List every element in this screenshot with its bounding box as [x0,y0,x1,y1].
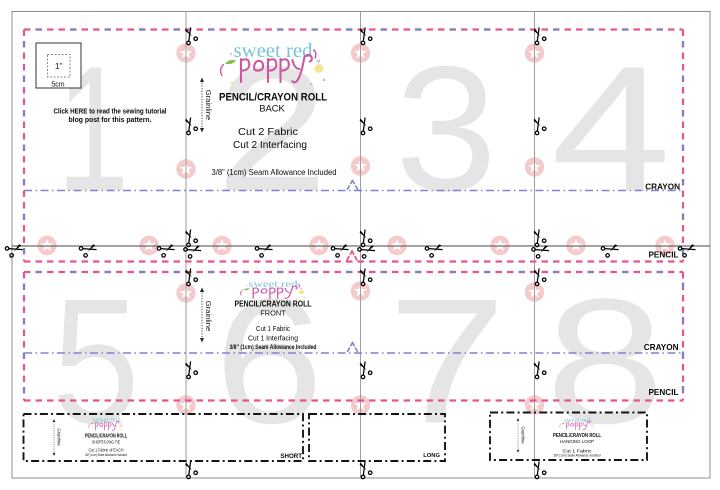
svg-text:3/8” (1cm) Seam Allowance Incl: 3/8” (1cm) Seam Allowance Included [85,453,127,457]
svg-text:Grainline: Grainline [521,426,526,444]
svg-text:3/8” (1cm) Seam Allowance Incl: 3/8” (1cm) Seam Allowance Included [230,344,317,351]
svg-text:PENCIL: PENCIL [648,388,678,397]
svg-text:1”: 1” [55,62,62,71]
svg-text:8: 8 [546,261,665,460]
svg-text:Click HERE to read the sewing: Click HERE to read the sewing tutorial [54,109,167,116]
svg-text:3: 3 [395,29,497,228]
svg-text:LONG: LONG [423,453,440,459]
svg-text:3/8” (1cm) Seam Allowance Incl: 3/8” (1cm) Seam Allowance Included [554,454,601,458]
svg-text:PENCIL: PENCIL [648,251,678,260]
svg-text:SHORT: SHORT [280,453,302,460]
svg-text:7: 7 [388,261,507,460]
svg-text:6: 6 [215,262,324,461]
svg-text:HANGING LOOP: HANGING LOOP [560,439,594,444]
svg-text:Cut 1 Fabric: Cut 1 Fabric [256,324,290,333]
svg-text:5cm: 5cm [51,82,64,89]
svg-text:Cut 2 Fabric: Cut 2 Fabric [238,127,298,138]
svg-text:Grainline: Grainline [204,301,213,331]
svg-text:PENCIL/CRAYON ROLL: PENCIL/CRAYON ROLL [219,92,327,104]
svg-text:Grainline: Grainline [57,428,62,446]
svg-text:CRAYON: CRAYON [645,183,680,192]
svg-text:5: 5 [52,261,139,461]
svg-text:Cut 2 Interfacing: Cut 2 Interfacing [233,140,307,151]
svg-text:Grainline: Grainline [204,90,213,120]
svg-text:blog post for this pattern.: blog post for this pattern. [69,117,152,124]
svg-text:CRAYON: CRAYON [644,343,679,352]
svg-text:SHORT/LONG TIE: SHORT/LONG TIE [92,440,120,445]
svg-text:FRONT: FRONT [260,309,286,318]
svg-text:3/8” (1cm) Seam Allowance Incl: 3/8” (1cm) Seam Allowance Included [212,167,337,177]
svg-text:Cut 1 Interfacing: Cut 1 Interfacing [248,334,298,343]
svg-text:4: 4 [551,29,671,228]
svg-text:Cut 1 Fabric of EACH: Cut 1 Fabric of EACH [89,448,124,453]
svg-text:BACK: BACK [259,104,285,114]
svg-text:PENCIL/CRAYON ROLL: PENCIL/CRAYON ROLL [235,299,312,309]
